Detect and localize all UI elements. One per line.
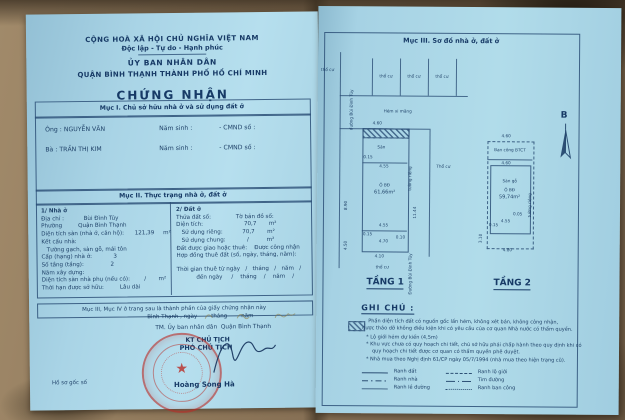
owner1-birth-label: Năm sinh :	[159, 125, 192, 133]
handwriting-marks	[197, 308, 307, 321]
legend-label: Ranh ban công	[478, 386, 516, 392]
floor1-area-value: 61,66m²	[362, 190, 407, 196]
dim-label: 4.60	[501, 134, 510, 139]
national-motto: Độc lập - Tự do - Hạnh phúc	[36, 43, 308, 54]
legend-line-dotted	[446, 389, 472, 390]
legend-line-dashed	[446, 373, 472, 374]
dim-label: 0.05	[513, 212, 522, 217]
balcony-label: Ban công BTCT	[487, 148, 532, 153]
certificate-left-page: CỘNG HOÀ XÃ HỘI CHỦ NGHĨA VIỆT NAM Độc l…	[26, 11, 322, 410]
alley-label: Hẻm xi măng	[384, 109, 412, 114]
dim-label: 4.70	[379, 239, 388, 244]
adjacent-zone-label: Thổ cư	[436, 165, 450, 170]
legend-line-thin	[362, 388, 388, 389]
neighbor-zone-label: thổ cư	[321, 68, 334, 73]
land-line: Hợp đồng thuê đất (số, ngày, tháng, năm)…	[176, 252, 308, 261]
owner2-birth-label: Năm sinh :	[159, 145, 192, 153]
legend-label: Tim đường	[478, 378, 505, 384]
legend-line-centerline	[446, 381, 472, 382]
floor2-floor-label: Sàn gỗ	[490, 179, 529, 184]
dim-label: 0.15	[363, 155, 372, 160]
neighbor-zone-label: thổ cư	[400, 75, 428, 80]
below-zone-label: thổ cư	[376, 265, 389, 270]
dim-label: 4.10	[375, 254, 384, 259]
legend-heading: GHI CHÚ :	[361, 303, 414, 315]
map-cell-code: Ô BĐ	[362, 183, 407, 188]
dim-label: 0.15	[489, 223, 498, 228]
house-line: Diện tích sàn (nhà ở, căn hộ): 121,39 m²	[41, 230, 167, 239]
signer-name: Hoàng Song Hà	[174, 380, 235, 389]
land-column: 2/ Đất ở Thửa đất số: Tờ bản đồ số: Diện…	[176, 205, 309, 282]
dim-label: 11.44	[413, 193, 418, 219]
floor2-area-value: 59,74m²	[490, 195, 529, 201]
issuing-agency-locality: QUẬN BÌNH THẠNH THÀNH PHỐ HỒ CHÍ MINH	[36, 68, 308, 79]
dim-label: 4.55	[501, 219, 510, 224]
owner2-name: Bà : TRẦN THỊ KIM	[45, 146, 101, 154]
dim-label: 0.10	[396, 235, 405, 240]
house-line: Thời hạn được sở hữu: Lâu dài	[42, 284, 168, 293]
owner2-cmnd-label: - CMND số :	[219, 144, 255, 152]
street-name-label-2: Đường Bùi Đình Túy	[408, 259, 413, 295]
issuing-agency: ỦY BAN NHÂN DÂN	[36, 57, 308, 69]
dim-label: 4.60	[373, 121, 382, 126]
legend-label: Ranh lề đường	[394, 385, 430, 391]
dim-label: 4.80	[503, 248, 512, 253]
legend-line-solid	[362, 372, 388, 373]
alley-encroachment-hatch	[363, 128, 410, 138]
map-cell-code: Ô BĐ	[490, 188, 529, 193]
north-arrow-icon	[558, 124, 572, 162]
neighbor-zone-label: thổ cư	[428, 75, 456, 80]
owner1-cmnd-label: - CMND số :	[219, 124, 255, 132]
neighbor-zone-label: thổ cư	[372, 74, 400, 79]
origin-file-note: Hồ sơ gốc số	[52, 380, 87, 387]
dim-label: 8.90	[344, 184, 349, 210]
motto-underline	[138, 54, 206, 56]
north-letter: B	[561, 111, 568, 121]
legend-label: Ranh lộ giới	[478, 370, 507, 376]
legend-note: quy hoạch chi tiết được cơ quan có thẩm …	[372, 349, 520, 356]
site-plan-right-page: Mục III. Sơ đồ nhà ở, đất ở thổ cư thổ c…	[316, 6, 622, 415]
street-name-label: đường Bùi Đình Túy	[350, 60, 355, 130]
land-line: đến ngày / tháng / năm /	[177, 273, 309, 282]
dim-label: 4.55	[379, 164, 388, 169]
legend-line-dashdot	[362, 380, 388, 381]
document-photo: CỘNG HOÀ XÃ HỘI CHỦ NGHĨA VIỆT NAM Độc l…	[0, 0, 625, 420]
dim-label: 3.10	[479, 221, 484, 243]
house-column: 1/ Nhà ở Địa chỉ : Bùi Đình Túy Phường Q…	[41, 207, 168, 293]
owner1-name: Ông : NGUYỄN VĂN	[45, 126, 105, 134]
own-wall-label: tường riêng	[528, 183, 533, 217]
own-wall-label: tường riêng	[408, 157, 413, 191]
dim-label: 4.50	[344, 228, 349, 250]
dim-label: 4.55	[379, 223, 388, 228]
floor2-label: TẦNG 2	[493, 278, 531, 291]
legend-label: Ranh nhà	[394, 377, 418, 383]
dim-label: 0.15	[363, 232, 372, 237]
yard-label: Sân	[377, 145, 385, 150]
legend-label: Ranh đất	[394, 369, 417, 375]
signature-icon	[207, 330, 280, 383]
floor1-label: TẦNG 1	[366, 277, 404, 290]
